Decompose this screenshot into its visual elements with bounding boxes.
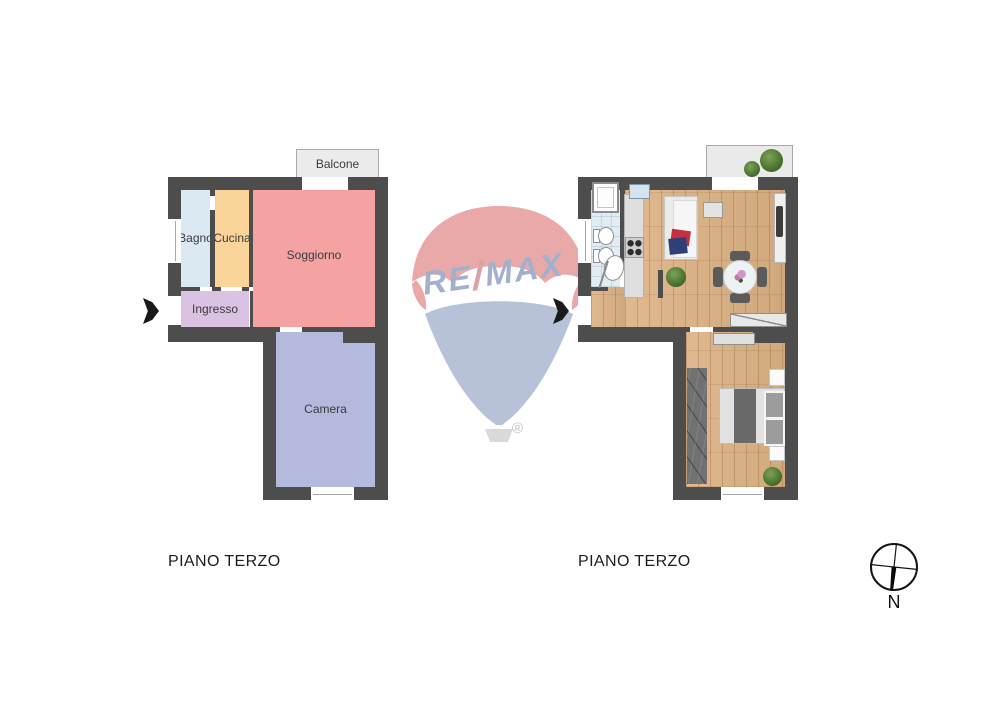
window-opening [311,487,354,500]
blue-pillow [668,237,688,255]
wall [578,327,686,342]
wall [168,327,276,342]
door-opening [690,327,713,332]
shower-tray [597,187,614,208]
plant-icon [744,161,760,177]
door-opening [302,177,348,190]
room-cucina-label: Cucina [213,231,250,245]
double-bed-icon [719,388,785,444]
hallway-floor [591,287,625,329]
compass-icon [864,537,924,597]
entry-door-opening [578,296,591,325]
door-opening [712,177,758,190]
window-opening [168,219,181,263]
wardrobe-icon [687,368,707,484]
wall [673,327,686,500]
entry-door-opening [168,296,181,325]
bed-blanket [734,389,756,443]
floorplan-page: RE/MAX ® Balcone Bagno Cucina Soggiorno … [0,0,1000,706]
balloon-envelope [425,301,573,425]
wall [785,190,798,500]
toilet-icon [598,227,614,245]
room-camera-label: Camera [304,402,347,416]
chair-icon [757,267,767,287]
plant-icon [763,467,782,486]
stove-icon [625,237,644,258]
room-soggiorno: Soggiorno [253,190,375,327]
window-opening [578,219,591,263]
chair-icon [713,267,723,287]
window-glass-line [175,221,176,261]
wall [375,190,388,500]
left-balcony-label: Balcone [316,157,359,171]
door-opening [200,287,212,291]
left-balcony: Balcone [296,149,379,179]
room-ingresso-label: Ingresso [192,302,238,316]
balloon-icon [399,198,599,443]
window-glass-line [585,221,586,261]
plant-icon [666,267,686,287]
room-bagno-label: Bagno [178,231,213,245]
door-opening [221,287,242,291]
tv-icon [776,206,783,237]
door-opening [280,327,302,332]
room-ingresso: Ingresso [181,291,249,327]
remax-re: RE [420,258,475,302]
room-soggiorno-label: Soggiorno [287,248,342,262]
chair-icon [730,293,750,303]
side-table-icon [703,202,723,218]
right-plan-caption: PIANO TERZO [578,553,691,571]
flower-centerpiece-icon [733,269,747,285]
remax-max: MAX [482,245,566,293]
window-glass-line [723,494,762,495]
compass-north-label: N [880,592,908,613]
wall [263,327,276,500]
room-bagno: Bagno [181,190,210,287]
wall [250,291,253,327]
wall [249,190,253,287]
low-cabinet [713,333,755,345]
entrance-arrow-icon [143,298,159,324]
window-opening [721,487,764,500]
wall [343,327,375,343]
door-opening [210,196,215,210]
wall [658,270,663,298]
nightstand-icon [769,446,785,461]
nightstand-icon [769,369,785,386]
shower-icon [592,182,619,213]
window-glass-line [313,494,352,495]
remax-watermark: RE/MAX ® [399,198,599,443]
room-cucina: Cucina [215,190,249,287]
kitchen-sink-icon [629,184,650,199]
wall [753,327,785,343]
pillow [764,418,785,446]
balloon-basket [485,429,513,442]
left-plan-caption: PIANO TERZO [168,553,281,571]
desk-icon [730,313,787,327]
room-camera: Camera [276,332,375,487]
wall [168,177,388,190]
pillow [764,391,785,419]
registered-trademark-icon: ® [512,420,523,437]
plant-icon [760,149,783,172]
